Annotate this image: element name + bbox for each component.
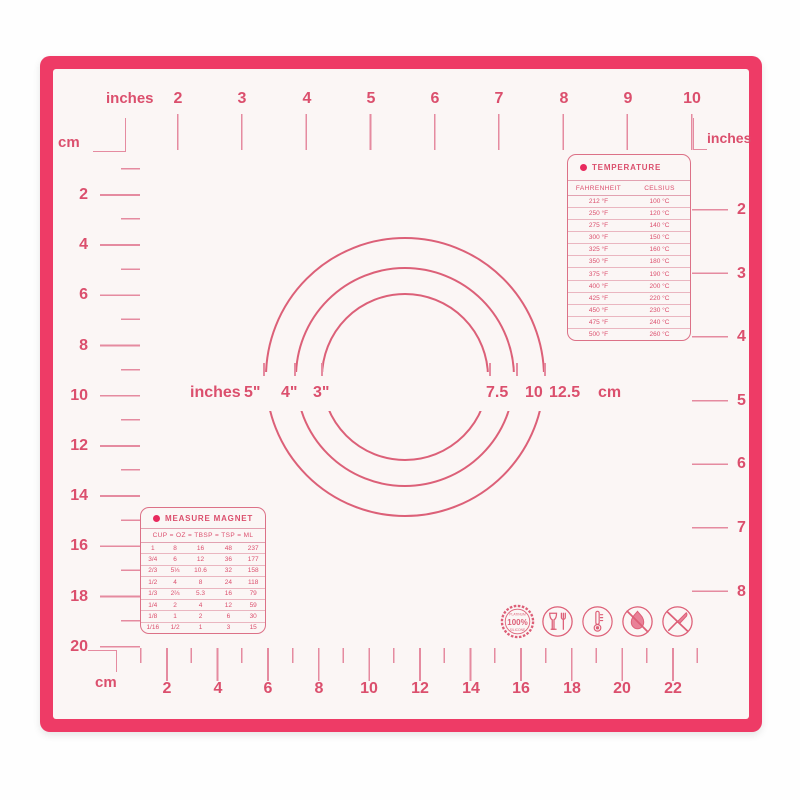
bottom-ruler-number: 2 <box>163 680 172 698</box>
bottom-ruler-number: 10 <box>360 680 378 698</box>
top-ruler-number: 3 <box>238 90 247 108</box>
measure-rows: 181648237 3/461236177 2/35⅓10.632158 1/2… <box>141 543 265 633</box>
bottom-ruler-number: 4 <box>214 680 223 698</box>
table-row: 300 °F150 °C <box>568 232 690 244</box>
bottom-ruler-unit-label: cm <box>95 674 117 691</box>
left-ruler-number: 2 <box>56 186 88 204</box>
circle-label-band <box>238 372 650 411</box>
cell: 32 <box>215 567 241 574</box>
left-ruler-number: 6 <box>56 286 88 304</box>
cell: 16 <box>215 590 241 597</box>
cell: 30 <box>241 613 265 620</box>
cell: 425 °F <box>568 295 629 302</box>
cell: 190 °C <box>629 271 690 278</box>
knife-handle <box>669 622 677 630</box>
table-row: 325 °F160 °C <box>568 244 690 256</box>
measure-title-text: MEASURE MAGNET <box>165 514 253 523</box>
table-row: 1/32⅔5.31679 <box>141 589 265 600</box>
cell: 230 °C <box>629 307 690 314</box>
circle-unit-inches: inches <box>190 384 241 402</box>
circle-size-label: 3" <box>313 384 329 402</box>
no-knife-icon <box>659 601 696 642</box>
cell: 118 <box>241 579 265 586</box>
cell: 260 °C <box>629 331 690 338</box>
circle-tick <box>544 363 546 376</box>
cell: 140 °C <box>629 222 690 229</box>
temperature-table: TEMPERATURE FAHRENHEIT CELSIUS 212 °F100… <box>567 154 691 341</box>
right-ruler-number: 6 <box>737 455 746 473</box>
cell: 2 <box>165 602 186 609</box>
bottom-ruler-number: 14 <box>462 680 480 698</box>
cell: 212 °F <box>568 198 629 205</box>
measure-header-text: CUP = OZ = TBSP = TSP = ML <box>153 532 254 539</box>
cell: 1 <box>165 613 186 620</box>
no-open-flame-icon <box>619 601 656 642</box>
cell: 8 <box>186 579 216 586</box>
top-ruler-number: 2 <box>174 90 183 108</box>
top-ruler-unit-label: inches <box>106 90 154 107</box>
right-ruler-unit-label: inches <box>707 130 751 146</box>
table-row: 1/24824118 <box>141 577 265 588</box>
circle-tick <box>489 363 491 376</box>
badge-value-text: 100% <box>507 618 527 627</box>
table-row: 500 °F260 °C <box>568 329 690 340</box>
cell: 16 <box>186 545 216 552</box>
right-ruler-number: 2 <box>737 201 746 219</box>
bottom-ruler-number: 8 <box>315 680 324 698</box>
cell: 8 <box>165 545 186 552</box>
top-left-ruler-corner <box>93 118 126 152</box>
circle-size-label: 4" <box>281 384 297 402</box>
bottom-ruler-number: 18 <box>563 680 581 698</box>
table-row: 3/461236177 <box>141 554 265 565</box>
cell: 12 <box>186 556 216 563</box>
cell: 375 °F <box>568 271 629 278</box>
cell: 1/2 <box>165 624 186 631</box>
cell: 3/4 <box>141 556 165 563</box>
cell: 177 <box>241 556 265 563</box>
table-row: 475 °F240 °C <box>568 317 690 329</box>
cell: 10.6 <box>186 567 216 574</box>
bottom-ruler-number: 20 <box>613 680 631 698</box>
left-ruler-number: 4 <box>56 236 88 254</box>
badge-bottom-text: SILICONE <box>510 628 526 632</box>
temperature-title-text: TEMPERATURE <box>592 163 661 172</box>
right-ruler-number: 3 <box>737 265 746 283</box>
cell: 1/3 <box>141 590 165 597</box>
bottom-ruler-number: 12 <box>411 680 429 698</box>
circle-tick <box>321 363 323 376</box>
cell: 4 <box>186 602 216 609</box>
table-row: 2/35⅓10.632158 <box>141 566 265 577</box>
badge-top-text: PLATINUM <box>509 613 526 617</box>
measure-table-title: MEASURE MAGNET <box>141 508 265 529</box>
col-celsius: CELSIUS <box>629 185 690 192</box>
right-ruler-number: 8 <box>737 583 746 601</box>
cell: 5.3 <box>186 590 216 597</box>
cell: 325 °F <box>568 246 629 253</box>
top-ruler-number: 8 <box>560 90 569 108</box>
cell: 450 °F <box>568 307 629 314</box>
cell: 240 °C <box>629 319 690 326</box>
col-fahrenheit: FAHRENHEIT <box>568 185 629 192</box>
left-ruler-number: 12 <box>56 437 88 455</box>
circle-tick <box>263 363 265 376</box>
table-row: 400 °F200 °C <box>568 281 690 293</box>
top-ruler-number: 7 <box>495 90 504 108</box>
top-ruler-ticks <box>177 114 697 150</box>
top-ruler-number: 6 <box>431 90 440 108</box>
cell: 350 °F <box>568 258 629 265</box>
table-row: 1/812630 <box>141 611 265 622</box>
table-row: 250 °F120 °C <box>568 208 690 220</box>
cell: 36 <box>215 556 241 563</box>
table-row: 181648237 <box>141 543 265 554</box>
top-ruler-number: 5 <box>367 90 376 108</box>
cell: 24 <box>215 579 241 586</box>
left-ruler-minor-ticks <box>121 168 140 624</box>
temperature-table-header: FAHRENHEIT CELSIUS <box>568 181 690 196</box>
bottom-ruler-number: 6 <box>264 680 273 698</box>
cell: 59 <box>241 602 265 609</box>
temperature-table-title: TEMPERATURE <box>568 155 690 181</box>
food-safe-glass-fork-icon <box>539 601 576 642</box>
table-row: 1/4241259 <box>141 600 265 611</box>
measure-magnet-table: MEASURE MAGNET CUP = OZ = TBSP = TSP = M… <box>140 507 266 634</box>
circle-size-label: 7.5 <box>486 384 508 402</box>
bullet-dot-icon <box>153 515 160 522</box>
temperature-rows: 212 °F100 °C 250 °F120 °C 275 °F140 °C 3… <box>568 196 690 340</box>
circle-tick <box>516 363 518 376</box>
product-photo-baking-mat: inches 2 3 4 5 6 7 8 9 10 cm 2 4 6 8 10 … <box>0 0 800 800</box>
cell: 275 °F <box>568 222 629 229</box>
cell: 5⅓ <box>165 567 186 574</box>
cell: 1/16 <box>141 624 165 631</box>
table-row: 275 °F140 °C <box>568 220 690 232</box>
cell: 6 <box>165 556 186 563</box>
cell: 475 °F <box>568 319 629 326</box>
cell: 2/3 <box>141 567 165 574</box>
cell: 150 °C <box>629 234 690 241</box>
circle-size-label: 5" <box>244 384 260 402</box>
certification-icons-row: PLATINUM 100% SILICONE <box>499 601 696 642</box>
left-ruler-number: 16 <box>56 537 88 555</box>
table-row: 1/161/21315 <box>141 623 265 633</box>
cell: 400 °F <box>568 283 629 290</box>
left-ruler-number: 18 <box>56 588 88 606</box>
cell: 3 <box>215 624 241 631</box>
cell: 48 <box>215 545 241 552</box>
cell: 158 <box>241 567 265 574</box>
table-row: 450 °F230 °C <box>568 305 690 317</box>
left-ruler-number: 10 <box>56 387 88 405</box>
cell: 120 °C <box>629 210 690 217</box>
table-row: 375 °F190 °C <box>568 268 690 280</box>
cell: 1/4 <box>141 602 165 609</box>
cell: 15 <box>241 624 265 631</box>
left-ruler-unit-label: cm <box>58 134 80 151</box>
circle-tick <box>294 363 296 376</box>
cell: 1 <box>141 545 165 552</box>
cell: 1 <box>186 624 216 631</box>
cell: 300 °F <box>568 234 629 241</box>
bottom-ruler-minor-ticks <box>140 648 702 663</box>
cell: 4 <box>165 579 186 586</box>
left-ruler-number: 20 <box>56 638 88 656</box>
table-row: 350 °F180 °C <box>568 256 690 268</box>
circle-unit-cm: cm <box>598 384 621 402</box>
cell: 200 °C <box>629 283 690 290</box>
measure-table-header: CUP = OZ = TBSP = TSP = ML <box>141 529 265 543</box>
cell: 2⅔ <box>165 590 186 597</box>
cell: 100 °C <box>629 198 690 205</box>
left-ruler-number: 14 <box>56 487 88 505</box>
right-ruler-number: 5 <box>737 392 746 410</box>
cell: 250 °F <box>568 210 629 217</box>
left-ruler-number: 8 <box>56 337 88 355</box>
platinum-silicone-badge-icon: PLATINUM 100% SILICONE <box>499 601 536 642</box>
circle-size-label: 10 <box>525 384 543 402</box>
bottom-left-ruler-corner <box>88 650 117 672</box>
top-ruler-number: 10 <box>683 90 701 108</box>
right-ruler-ticks <box>692 209 728 595</box>
table-row: 425 °F220 °C <box>568 293 690 305</box>
circle-size-label: 12.5 <box>549 384 580 402</box>
bullet-dot-icon <box>580 164 587 171</box>
top-right-ruler-corner <box>693 118 707 150</box>
cell: 1/2 <box>141 579 165 586</box>
temperature-range-thermometer-icon <box>579 601 616 642</box>
cell: 12 <box>215 602 241 609</box>
top-ruler-number: 9 <box>624 90 633 108</box>
cell: 79 <box>241 590 265 597</box>
cell: 2 <box>186 613 216 620</box>
cell: 160 °C <box>629 246 690 253</box>
cell: 500 °F <box>568 331 629 338</box>
right-ruler-number: 7 <box>737 519 746 537</box>
right-ruler-number: 4 <box>737 328 746 346</box>
bottom-ruler-number: 16 <box>512 680 530 698</box>
top-ruler-number: 4 <box>303 90 312 108</box>
cell: 6 <box>215 613 241 620</box>
cell: 180 °C <box>629 258 690 265</box>
bottom-ruler-number: 22 <box>664 680 682 698</box>
table-row: 212 °F100 °C <box>568 196 690 208</box>
cell: 237 <box>241 545 265 552</box>
cell: 220 °C <box>629 295 690 302</box>
cell: 1/8 <box>141 613 165 620</box>
